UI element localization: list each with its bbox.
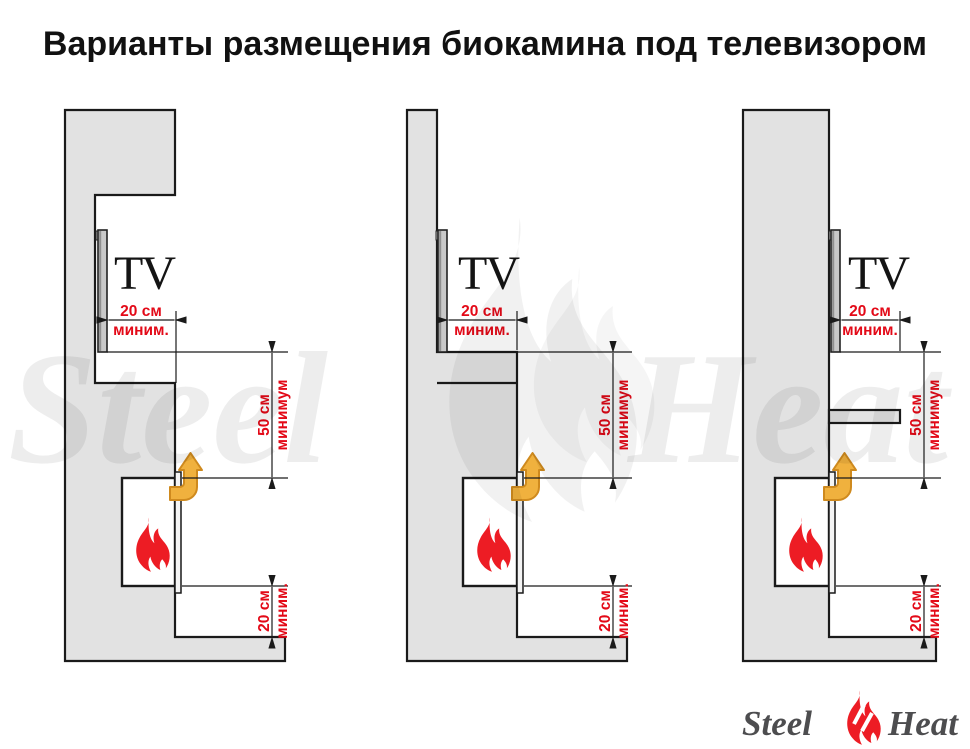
bottom-clearance-label-value: 20 см — [597, 590, 614, 632]
tv-label: TV — [458, 247, 520, 300]
top-clearance-label-min: минимум — [615, 379, 632, 450]
brand-logo: Steel Heat — [742, 691, 959, 745]
logo-steel-text: Steel — [742, 704, 812, 743]
bottom-clearance-label-min: миним. — [926, 583, 943, 639]
side-clearance-label-value: 20 см — [461, 303, 503, 320]
bottom-clearance-label-value: 20 см — [256, 590, 273, 632]
diagram-variant-3: TV 20 см миним. 50 см минимум 20 см мини… — [743, 110, 943, 661]
side-clearance-label-min: миним. — [842, 322, 898, 339]
diagram-variant-1: TV 20 см миним. 50 см минимум 20 см мини… — [65, 110, 291, 661]
top-clearance-label-value: 50 см — [256, 394, 273, 436]
side-clearance-label-value: 20 см — [849, 303, 891, 320]
tv-label: TV — [114, 247, 176, 300]
top-clearance-label-min: минимум — [926, 379, 943, 450]
top-clearance-label-value: 50 см — [908, 394, 925, 436]
logo-heat-text: Heat — [887, 704, 959, 743]
infographic-canvas: Варианты размещения биокамина под телеви… — [0, 0, 970, 749]
bottom-clearance-label-min: миним. — [274, 583, 291, 639]
bottom-clearance-label-min: миним. — [615, 583, 632, 639]
watermark-flame-small-icon — [534, 267, 655, 462]
wall-shape — [743, 110, 936, 661]
mantel-shelf — [829, 410, 900, 423]
tv-screen — [436, 230, 447, 352]
tv-screen — [96, 230, 107, 352]
side-clearance-label-value: 20 см — [120, 303, 162, 320]
tv-label: TV — [848, 247, 910, 300]
top-clearance-label-value: 50 см — [597, 394, 614, 436]
diagram-scene: TV 20 см миним. 50 см минимум 20 см мини… — [0, 0, 970, 749]
diagram-variant-2: TV 20 см миним. 50 см минимум 20 см мини… — [407, 110, 632, 661]
bottom-clearance-label-value: 20 см — [908, 590, 925, 632]
top-clearance-label-min: минимум — [274, 379, 291, 450]
side-clearance-label-min: миним. — [454, 322, 510, 339]
side-clearance-label-min: миним. — [113, 322, 169, 339]
tv-screen — [829, 230, 840, 352]
logo-flame-icon — [847, 691, 880, 745]
